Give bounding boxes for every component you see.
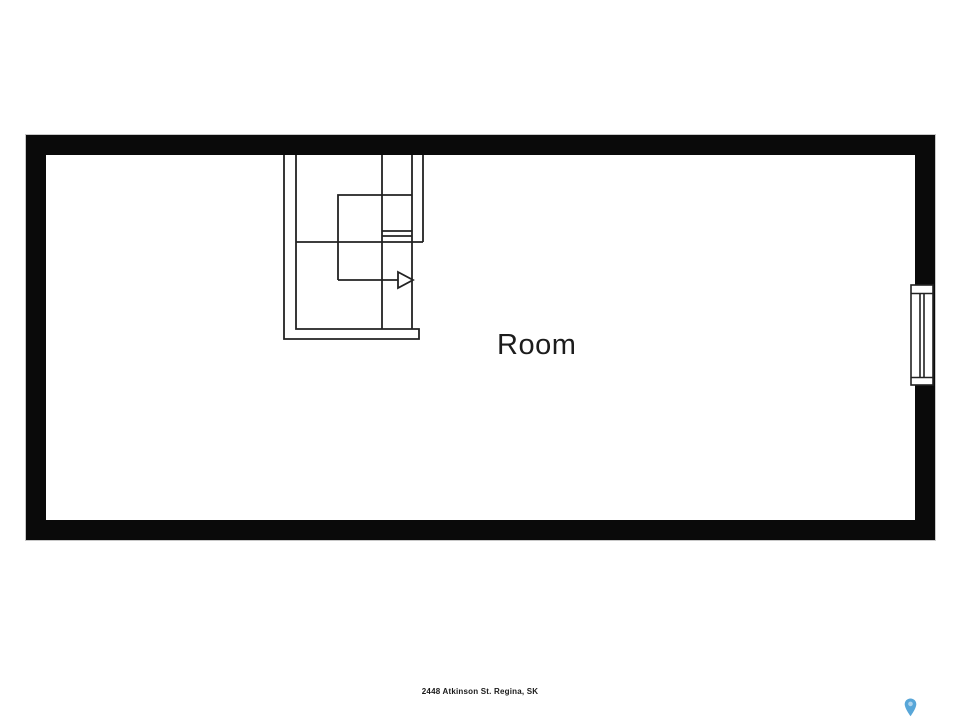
floorplan-drawing — [0, 0, 960, 720]
address-caption: 2448 Atkinson St. Regina, SK — [0, 687, 960, 696]
floorplan-page: Room 2448 Atkinson St. Regina, SK — [0, 0, 960, 720]
location-pin-icon[interactable] — [904, 698, 917, 717]
room-outline — [26, 135, 936, 541]
window-symbol — [911, 285, 933, 385]
room-label: Room — [497, 330, 576, 362]
